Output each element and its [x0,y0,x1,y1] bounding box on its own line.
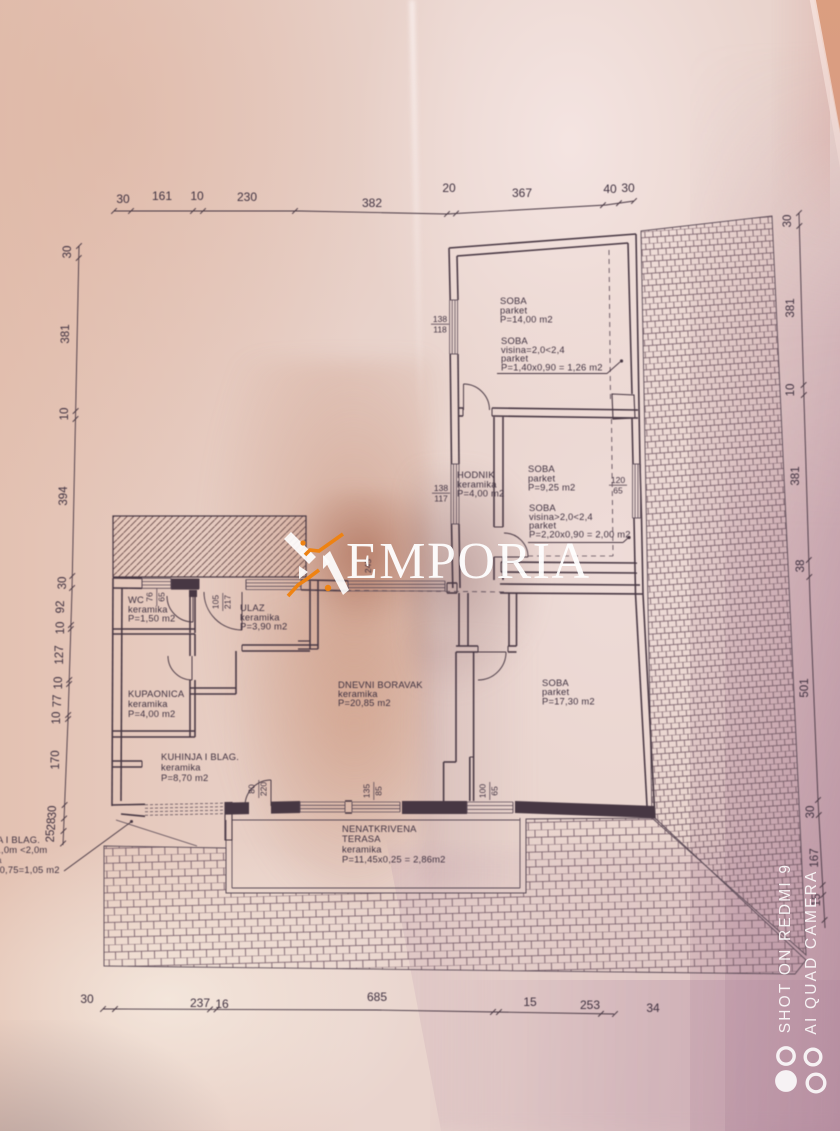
svg-text:SOBA: SOBA [529,502,556,513]
svg-text:P=4,00 m2: P=4,00 m2 [457,488,504,499]
svg-text:100: 100 [478,784,488,798]
svg-text:P=17,30 m2: P=17,30 m2 [542,695,595,706]
svg-text:34: 34 [646,1001,660,1015]
svg-text:77: 77 [52,695,64,708]
svg-text:16: 16 [215,997,229,1011]
svg-text:381: 381 [60,324,72,343]
svg-text:30: 30 [782,215,794,228]
svg-text:visina>2,0<2,4: visina>2,0<2,4 [529,511,593,522]
svg-text:HODNIK: HODNIK [457,469,495,480]
svg-text:65: 65 [157,592,167,602]
svg-text:501: 501 [799,678,811,697]
svg-text:10: 10 [53,677,65,690]
svg-text:DNEVNI BORAVAK: DNEVNI BORAVAK [338,679,423,690]
svg-text:237: 237 [190,996,210,1010]
svg-text:keramika: keramika [457,478,497,489]
svg-text:P=8,70 m2: P=8,70 m2 [161,772,208,783]
svg-text:P=1,50 m2: P=1,50 m2 [128,613,175,624]
svg-text:ULAZ: ULAZ [240,602,265,613]
svg-text:15: 15 [811,894,823,907]
svg-text:38: 38 [795,560,807,573]
svg-text:keramika: keramika [0,854,2,865]
svg-text:65: 65 [613,486,623,496]
svg-text:120: 120 [611,475,625,485]
svg-text:65: 65 [490,786,500,796]
svg-text:keramika: keramika [161,762,201,773]
svg-text:NENATKRIVENA: NENATKRIVENA [342,823,417,834]
svg-text:SOBA: SOBA [500,295,527,306]
svg-text:10: 10 [785,384,797,397]
svg-text:220: 220 [259,782,269,796]
svg-text:10: 10 [59,408,71,421]
svg-text:parket: parket [501,353,528,364]
svg-text:381: 381 [785,298,797,317]
svg-text:367: 367 [512,186,532,200]
svg-text:30: 30 [116,192,130,206]
svg-text:SOBA: SOBA [542,677,569,688]
svg-text:SOBA: SOBA [528,463,555,474]
svg-text:keramika: keramika [240,611,280,622]
svg-text:105: 105 [211,595,221,609]
svg-text:TERASA: TERASA [342,833,381,844]
svg-text:P=4,00 m2: P=4,00 m2 [128,708,175,719]
svg-text:15: 15 [523,995,537,1009]
svg-text:KUHINJA I BLAG.: KUHINJA I BLAG. [161,751,239,762]
svg-text:parket: parket [500,304,527,315]
svg-text:keramika: keramika [128,698,168,709]
svg-text:217: 217 [223,595,233,609]
svg-text:KUHINJA I BLAG.: KUHINJA I BLAG. [0,834,40,845]
svg-text:30: 30 [80,992,94,1006]
svg-text:30: 30 [805,806,817,819]
svg-text:230: 230 [237,190,257,204]
svg-text:30: 30 [62,246,74,259]
svg-text:127: 127 [54,645,66,664]
svg-text:keramika: keramika [128,603,168,614]
svg-text:161: 161 [152,189,172,203]
svg-text:visina=2,0<2,4: visina=2,0<2,4 [501,344,565,355]
svg-text:92: 92 [55,601,67,614]
svg-text:138: 138 [433,314,447,324]
svg-text:P=1,40x0,90 = 1,26 m2: P=1,40x0,90 = 1,26 m2 [501,361,603,372]
svg-text:118: 118 [433,325,447,335]
svg-text:visina >1,0m <2,0m: visina >1,0m <2,0m [0,844,47,855]
svg-text:P=3,90 m2: P=3,90 m2 [240,621,287,632]
svg-text:394: 394 [58,486,70,506]
svg-text:10: 10 [55,622,67,635]
svg-text:keramika: keramika [338,688,378,699]
svg-text:138: 138 [434,483,448,493]
svg-text:245: 245 [363,559,373,573]
svg-text:SOBA: SOBA [501,335,528,346]
svg-text:135: 135 [362,784,372,798]
svg-text:parket: parket [542,686,569,697]
svg-text:P=14,00 m2: P=14,00 m2 [500,314,553,325]
svg-text:EMPORIA: EMPORIA [346,533,591,590]
svg-text:30: 30 [621,181,635,195]
svg-text:P=20,85 m2: P=20,85 m2 [338,697,391,708]
svg-text:382: 382 [362,196,382,210]
svg-text:28: 28 [46,818,58,831]
svg-text:P=9,25 m2: P=9,25 m2 [528,482,575,493]
svg-text:keramika: keramika [342,843,382,854]
svg-text:10: 10 [51,712,63,725]
svg-text:P=2,20x0,90 = 2,00 m2: P=2,20x0,90 = 2,00 m2 [529,528,631,539]
svg-text:SHOT ON REDMI 9: SHOT ON REDMI 9 [777,863,794,1034]
svg-text:P=11,45x0,25 = 2,86m2: P=11,45x0,25 = 2,86m2 [342,854,446,865]
svg-text:40: 40 [603,182,617,196]
svg-text:KUPAONICA: KUPAONICA [128,688,185,699]
svg-text:AI QUAD CAMERA: AI QUAD CAMERA [803,869,820,1034]
svg-text:parket: parket [528,472,555,483]
svg-text:20: 20 [442,181,456,195]
svg-text:80: 80 [247,784,257,794]
svg-text:10: 10 [190,189,204,203]
svg-text:WC: WC [128,594,144,605]
svg-text:381: 381 [790,466,802,485]
svg-text:117: 117 [434,494,448,504]
svg-text:76: 76 [145,592,155,602]
svg-text:P=1,40X0,75=1,05 m2: P=1,40X0,75=1,05 m2 [0,864,60,875]
svg-text:25: 25 [45,830,57,843]
svg-text:253: 253 [580,998,600,1012]
svg-text:685: 685 [367,990,387,1004]
svg-text:30: 30 [47,806,59,819]
svg-text:170: 170 [50,750,62,769]
svg-text:parket: parket [529,520,556,531]
svg-text:85: 85 [374,786,384,796]
svg-text:30: 30 [57,577,69,590]
svg-text:167: 167 [809,848,821,867]
